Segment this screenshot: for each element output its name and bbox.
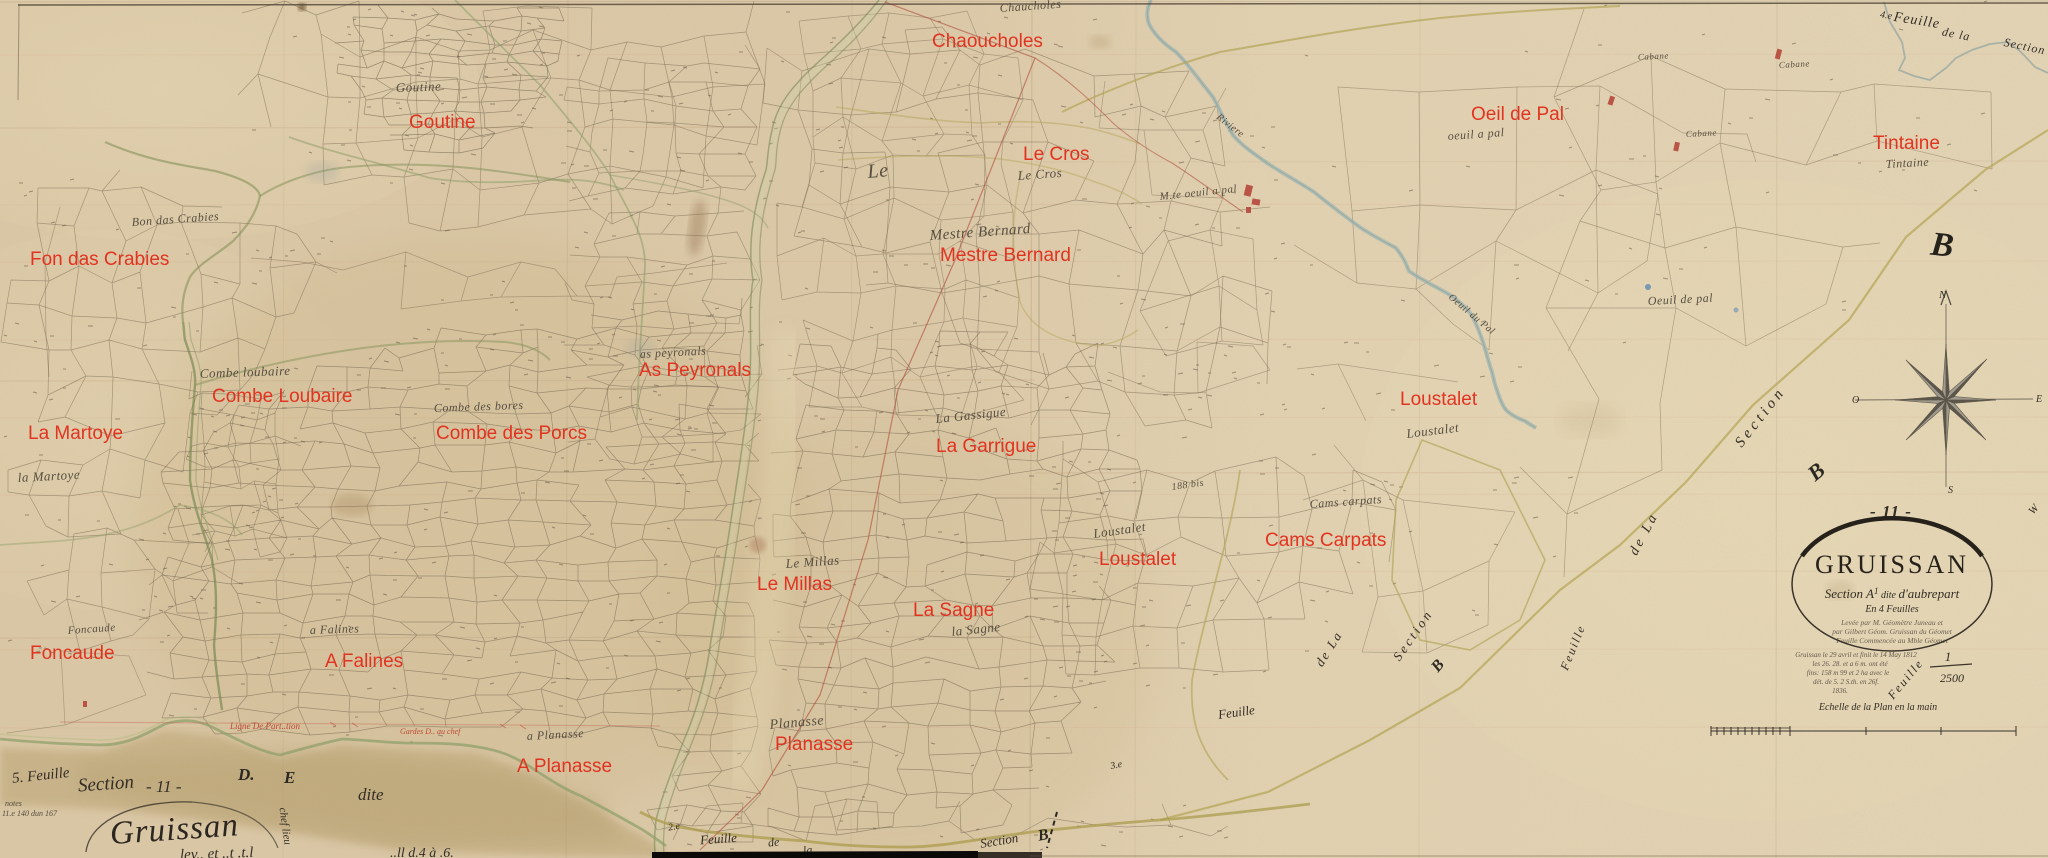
svg-text:GRUISSAN: GRUISSAN — [1815, 550, 1969, 579]
svg-text:Combe Loubaire: Combe Loubaire — [212, 386, 352, 407]
svg-text:D.: D. — [237, 765, 255, 784]
svg-text:A Planasse: A Planasse — [517, 756, 612, 777]
svg-text:Feuille: Feuille — [699, 830, 738, 848]
svg-text:A Falines: A Falines — [325, 651, 403, 672]
svg-text:Fon das Crabies: Fon das Crabies — [30, 249, 169, 270]
svg-text:Oeil de Pal: Oeil de Pal — [1471, 104, 1564, 125]
svg-text:les 26. 28. et a 6 m. ont été: les 26. 28. et a 6 m. ont été — [1812, 660, 1888, 668]
svg-text:dét. de 5. 2 S.th. en 26f.: dét. de 5. 2 S.th. en 26f. — [1813, 678, 1879, 686]
svg-text:1836.: 1836. — [1832, 687, 1848, 695]
svg-text:Combe des Porcs: Combe des Porcs — [436, 423, 587, 444]
svg-text:de: de — [767, 834, 780, 849]
svg-text:N: N — [1938, 289, 1947, 301]
svg-text:1: 1 — [1945, 649, 1952, 664]
svg-text:Tintaine: Tintaine — [1885, 155, 1929, 171]
svg-text:La Martoye: La Martoye — [28, 423, 123, 444]
svg-text:Feuille Commencée au Mble Géom: Feuille Commencée au Mble Géomet — [1835, 636, 1949, 645]
svg-text:a Falines: a Falines — [310, 621, 360, 637]
svg-text:As Peyronals: As Peyronals — [639, 360, 751, 381]
svg-text:Cabane: Cabane — [1638, 50, 1669, 62]
svg-text:E: E — [2035, 394, 2042, 405]
svg-text:Gruissan le 29 avril et finit: Gruissan le 29 avril et finit le 14 May … — [1795, 651, 1917, 659]
svg-text:- 11 -: - 11 - — [146, 777, 182, 796]
svg-text:11.e 140 dun 167: 11.e 140 dun 167 — [2, 809, 58, 818]
svg-text:Combe loubaire: Combe loubaire — [200, 363, 291, 381]
svg-text:Levée par M. Géomètre Juneau e: Levée par M. Géomètre Juneau et — [1840, 618, 1944, 627]
svg-text:Cabane: Cabane — [1686, 127, 1717, 139]
svg-text:Le: Le — [866, 159, 890, 183]
svg-text:..ll d.4 à .6.: ..ll d.4 à .6. — [390, 846, 454, 858]
svg-text:O: O — [1852, 395, 1859, 406]
svg-text:Le Cros: Le Cros — [1016, 165, 1062, 183]
svg-text:La Garrigue: La Garrigue — [936, 436, 1036, 457]
svg-text:Loustalet: Loustalet — [1400, 389, 1478, 410]
svg-text:fins: 158 m 99 et 2 ha avec le: fins: 158 m 99 et 2 ha avec le — [1807, 669, 1889, 677]
svg-text:par Gilbert Géom. Gruissan du: par Gilbert Géom. Gruissan du Géomet — [1831, 627, 1952, 636]
svg-text:Section: Section — [77, 772, 134, 797]
svg-text:S: S — [1948, 485, 1953, 496]
svg-text:Goutine: Goutine — [396, 78, 442, 95]
svg-text:4.e: 4.e — [1879, 10, 1893, 23]
svg-text:2500: 2500 — [1940, 671, 1964, 685]
svg-text:Le Cros: Le Cros — [1023, 144, 1090, 165]
svg-text:Tintaine: Tintaine — [1873, 133, 1940, 154]
svg-text:Goutine: Goutine — [409, 112, 476, 133]
svg-text:Loustalet: Loustalet — [1099, 549, 1177, 570]
svg-text:B: B — [1928, 226, 1955, 265]
svg-text:Cabane: Cabane — [1779, 58, 1810, 70]
svg-text:Gardes D.. au chef: Gardes D.. au chef — [400, 727, 462, 736]
svg-text:Chaoucholes: Chaoucholes — [932, 31, 1043, 52]
svg-text:Mestre Bernard: Mestre Bernard — [940, 245, 1071, 266]
svg-text:2.e: 2.e — [667, 821, 681, 834]
svg-text:Ligne De Part..tion: Ligne De Part..tion — [229, 721, 300, 731]
svg-text:Le Millas: Le Millas — [757, 574, 832, 595]
svg-text:En 4 Feuilles: En 4 Feuilles — [1864, 604, 1918, 615]
svg-text:Cams Carpats: Cams Carpats — [1265, 530, 1386, 551]
svg-text:Echelle de la Plan en la mai: Echelle de la Plan en la main — [1818, 702, 1937, 713]
svg-text:E: E — [283, 768, 295, 787]
svg-text:lev.. et ..t .t.l: lev.. et ..t .t.l — [180, 845, 254, 858]
svg-text:dite: dite — [358, 785, 384, 804]
svg-text:Planasse: Planasse — [775, 734, 853, 755]
svg-text:La Sagne: La Sagne — [913, 600, 994, 621]
svg-text:notes: notes — [5, 799, 22, 808]
svg-text:Foncaude: Foncaude — [30, 643, 115, 664]
